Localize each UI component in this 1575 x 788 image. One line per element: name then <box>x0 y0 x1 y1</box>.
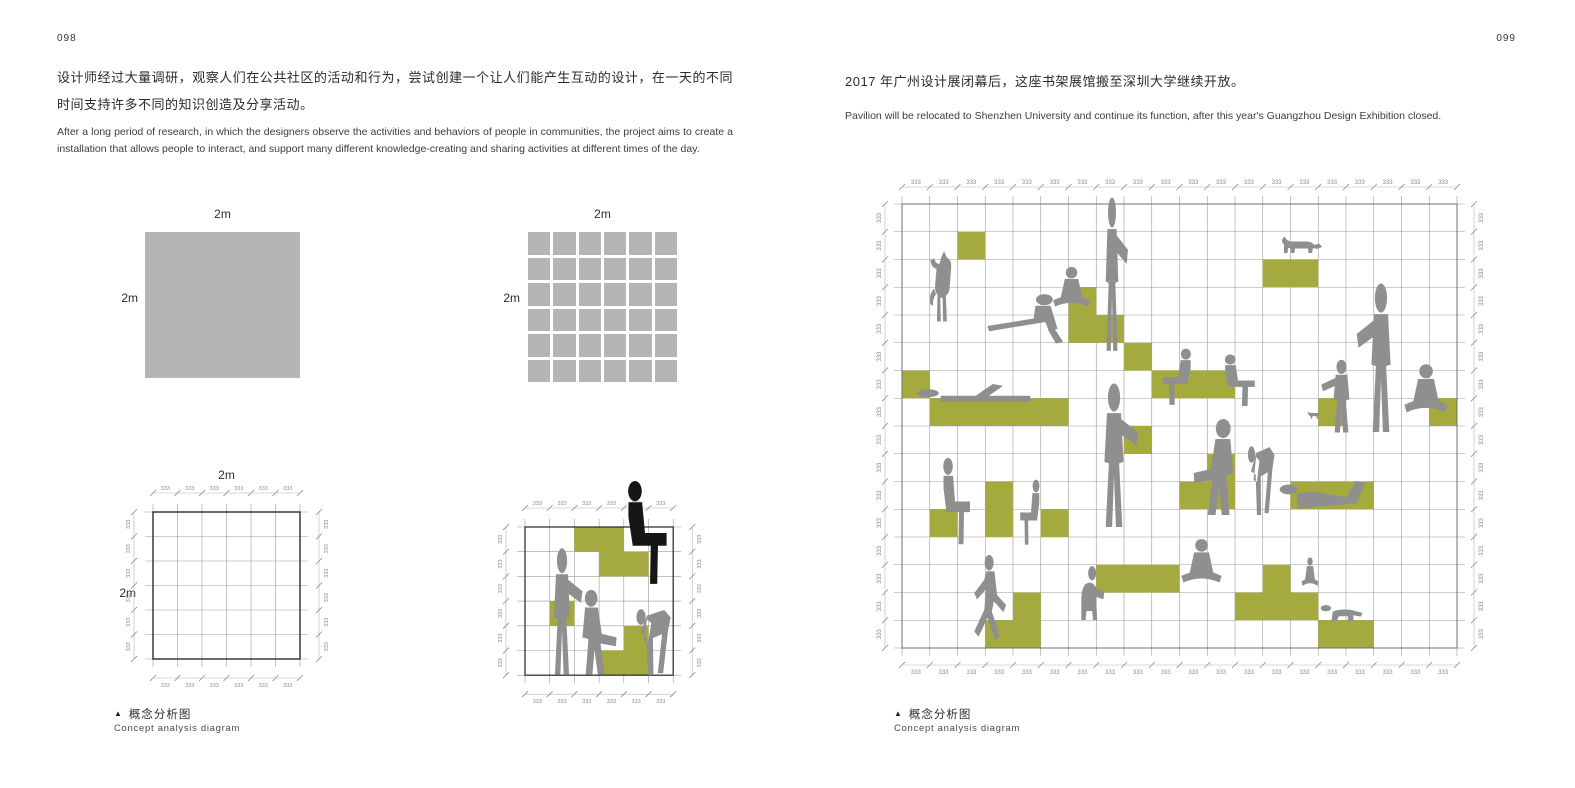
tick-label: 333 <box>1050 670 1061 676</box>
tick-label: 333 <box>1105 670 1116 676</box>
tick-label: 333 <box>1479 490 1485 501</box>
tick-label: 333 <box>324 618 330 627</box>
tick-label: 333 <box>697 634 703 643</box>
concept-diagram-large: 3333333333333333333333333333333333333333… <box>845 160 1510 695</box>
gray-module-cell <box>655 232 677 255</box>
tick-label: 333 <box>498 559 504 568</box>
gray-module-cell <box>629 232 651 255</box>
caption-triangle-icon: ▲ <box>894 710 903 718</box>
caption-zh-right: 概念分析图 <box>909 706 972 722</box>
green-module-cell <box>1069 315 1097 343</box>
tick-label: 333 <box>939 180 950 186</box>
tick-label: 333 <box>126 544 132 553</box>
tick-label: 333 <box>324 593 330 602</box>
figure-person-cross-legged <box>1404 364 1447 412</box>
tick-label: 333 <box>939 670 950 676</box>
paragraph-en-right: Pavilion will be relocated to Shenzhen U… <box>845 108 1505 125</box>
tick-label: 333 <box>1479 379 1485 390</box>
gray-module-cell <box>655 309 677 332</box>
tick-label: 333 <box>582 501 591 507</box>
tick-label: 333 <box>877 462 883 473</box>
solid-square <box>145 232 300 378</box>
figure-person-cross-legged <box>1302 557 1319 586</box>
tick-label: 333 <box>324 544 330 553</box>
green-module-cell <box>1013 593 1041 621</box>
figure-person-cross-legged <box>1053 267 1090 307</box>
tick-label: 333 <box>1216 670 1227 676</box>
tick-label: 333 <box>1022 180 1033 186</box>
figure-person-bend <box>1248 446 1275 515</box>
tick-label: 333 <box>1077 670 1088 676</box>
tick-label: 333 <box>161 683 170 689</box>
paragraph-zh-right: 2017 年广州设计展闭幕后，这座书架展馆搬至深圳大学继续开放。 <box>845 68 1495 95</box>
tick-label: 333 <box>498 535 504 544</box>
tick-label: 333 <box>1479 212 1485 223</box>
green-module-cell <box>985 482 1013 510</box>
green-module-cell <box>1124 565 1152 593</box>
green-module-cell <box>1013 620 1041 648</box>
figure-person-standing-arm <box>1104 383 1138 527</box>
figure-person-standing-arm <box>554 548 583 674</box>
figure-dog-small <box>1308 412 1320 418</box>
green-module-cell <box>1291 260 1319 288</box>
tick-label: 333 <box>1479 517 1485 528</box>
tick-label: 333 <box>1438 670 1449 676</box>
tick-label: 333 <box>1272 670 1283 676</box>
tick-label: 333 <box>911 180 922 186</box>
tick-label: 333 <box>911 670 922 676</box>
gray-module-cell <box>528 309 550 332</box>
solid-square-label-top: 2m <box>145 207 300 221</box>
outline-square-diagram: 3333333333333333333333333333333333333333… <box>105 455 350 705</box>
tick-label: 333 <box>126 642 132 651</box>
tick-label: 333 <box>1479 323 1485 334</box>
gray-module-cell <box>604 283 626 306</box>
paragraph-zh-left: 设计师经过大量调研，观察人们在公共社区的活动和行为，尝试创建一个让人们能产生互动… <box>57 64 733 118</box>
green-module-cell <box>1235 593 1263 621</box>
page-number-right: 099 <box>1470 33 1516 44</box>
tick-label: 333 <box>1216 180 1227 186</box>
gray-module-cell <box>629 309 651 332</box>
green-module-cell <box>1041 509 1069 537</box>
tick-label: 333 <box>697 535 703 544</box>
concept-diagram-small: 3333333333333333333333333333333333333333… <box>478 455 713 710</box>
green-module-cell <box>1263 593 1291 621</box>
tick-label: 333 <box>697 559 703 568</box>
tick-label: 333 <box>210 486 219 492</box>
green-module-cell <box>624 552 649 577</box>
tick-label: 333 <box>283 486 292 492</box>
gray-module-cell <box>604 258 626 281</box>
tick-label: 333 <box>161 486 170 492</box>
tick-label: 333 <box>1479 545 1485 556</box>
gray-module-cell <box>528 283 550 306</box>
figure-person-sit-block <box>1020 480 1039 545</box>
gray-module-cell <box>655 258 677 281</box>
book-spread: 098 设计师经过大量调研，观察人们在公共社区的活动和行为，尝试创建一个让人们能… <box>0 0 1575 788</box>
green-module-cell <box>1263 260 1291 288</box>
green-module-cell <box>1291 593 1319 621</box>
tick-label: 333 <box>1355 670 1366 676</box>
tick-label: 333 <box>557 699 566 705</box>
green-module-cell <box>1152 565 1180 593</box>
grid-square-label-left: 2m <box>480 291 520 305</box>
caption-left: ▲ 概念分析图 <box>114 706 191 722</box>
gray-module-cell <box>553 258 575 281</box>
tick-label: 333 <box>1479 240 1485 251</box>
tick-label: 333 <box>877 628 883 639</box>
green-module-cell <box>1263 565 1291 593</box>
tick-label: 333 <box>656 501 665 507</box>
green-module-cell <box>1152 371 1180 399</box>
tick-label: 333 <box>259 683 268 689</box>
tick-label: 333 <box>533 501 542 507</box>
caption-en-right: Concept analysis diagram <box>894 723 1020 734</box>
tick-label: 333 <box>877 351 883 362</box>
tick-label: 333 <box>1383 180 1394 186</box>
tick-label: 333 <box>1133 670 1144 676</box>
green-module-cell <box>958 398 986 426</box>
tick-label: 333 <box>877 295 883 306</box>
green-module-cell <box>1346 620 1374 648</box>
tick-label: 333 <box>1022 670 1033 676</box>
gray-module-cell <box>579 283 601 306</box>
tick-label: 333 <box>877 490 883 501</box>
caption-zh-left: 概念分析图 <box>129 706 192 722</box>
figure-baby-crawl <box>1321 605 1363 621</box>
tick-label: 333 <box>1383 670 1394 676</box>
page-number-left: 098 <box>57 33 77 44</box>
grid-square <box>528 232 677 382</box>
gray-module-cell <box>655 334 677 357</box>
gray-module-cell <box>528 258 550 281</box>
gray-module-cell <box>528 232 550 255</box>
green-module-cell <box>599 527 624 552</box>
green-module-cell <box>574 527 599 552</box>
tick-label: 333 <box>1410 180 1421 186</box>
gray-module-cell <box>629 360 651 383</box>
green-module-cell <box>599 552 624 577</box>
tick-label: 333 <box>126 618 132 627</box>
tick-label: 333 <box>877 434 883 445</box>
paragraph-en-left: After a long period of research, in whic… <box>57 124 733 157</box>
tick-label: 333 <box>877 573 883 584</box>
tick-label: 333 <box>1479 628 1485 639</box>
gray-module-cell <box>579 232 601 255</box>
tick-label: 333 <box>498 584 504 593</box>
tick-label: 333 <box>1188 180 1199 186</box>
tick-label: 333 <box>1050 180 1061 186</box>
figure-cat-walk <box>1282 237 1322 253</box>
gray-module-cell <box>655 360 677 383</box>
solid-square-label-left: 2m <box>98 291 138 305</box>
caption-en-left: Concept analysis diagram <box>114 723 240 734</box>
gray-module-cell <box>579 309 601 332</box>
gray-module-cell <box>655 283 677 306</box>
tick-label: 333 <box>607 699 616 705</box>
gray-module-cell <box>604 232 626 255</box>
gray-module-cell <box>604 309 626 332</box>
tick-label: 333 <box>1479 406 1485 417</box>
tick-label: 333 <box>877 601 883 612</box>
tick-label: 333 <box>877 323 883 334</box>
gray-module-cell <box>629 258 651 281</box>
tick-label: 333 <box>1327 180 1338 186</box>
figure-cat-climb <box>930 251 951 322</box>
grid-square-label-top: 2m <box>528 207 677 221</box>
tick-label: 333 <box>877 268 883 279</box>
tick-label: 333 <box>697 584 703 593</box>
green-module-cell <box>985 398 1013 426</box>
green-module-cell <box>624 651 649 676</box>
green-module-cell <box>1124 343 1152 371</box>
tick-label: 333 <box>126 569 132 578</box>
tick-label: 333 <box>1479 434 1485 445</box>
tick-label: 333 <box>582 699 591 705</box>
tick-label: 333 <box>877 406 883 417</box>
tick-label: 333 <box>1105 180 1116 186</box>
tick-label: 333 <box>697 609 703 618</box>
tick-label: 333 <box>259 486 268 492</box>
tick-label: 333 <box>1479 573 1485 584</box>
green-module-cell <box>1318 620 1346 648</box>
tick-label: 333 <box>1133 180 1144 186</box>
gray-module-cell <box>579 334 601 357</box>
gray-module-cell <box>579 258 601 281</box>
tick-label: 333 <box>632 699 641 705</box>
tick-label: 333 <box>994 180 1005 186</box>
tick-label: 333 <box>607 501 616 507</box>
tick-label: 333 <box>1479 295 1485 306</box>
tick-label: 333 <box>126 593 132 602</box>
gray-module-cell <box>629 283 651 306</box>
tick-label: 333 <box>498 609 504 618</box>
green-module-cell <box>930 509 958 537</box>
tick-label: 333 <box>1299 670 1310 676</box>
figure-person-cross-legged <box>1181 539 1221 583</box>
gray-module-cell <box>553 309 575 332</box>
gray-module-cell <box>604 334 626 357</box>
gray-module-cell <box>604 360 626 383</box>
tick-label: 333 <box>656 699 665 705</box>
gray-module-cell <box>528 360 550 383</box>
green-module-cell <box>1096 565 1124 593</box>
tick-label: 333 <box>1299 180 1310 186</box>
tick-label: 333 <box>877 379 883 390</box>
tick-label: 333 <box>324 642 330 651</box>
tick-label: 333 <box>1161 180 1172 186</box>
tick-label: 333 <box>994 670 1005 676</box>
tick-label: 333 <box>185 683 194 689</box>
green-module-cell <box>1013 398 1041 426</box>
green-module-cell <box>985 509 1013 537</box>
tick-label: 333 <box>234 486 243 492</box>
tick-label: 333 <box>1077 180 1088 186</box>
tick-label: 333 <box>697 658 703 667</box>
green-module-cell <box>958 232 986 260</box>
tick-label: 333 <box>966 670 977 676</box>
figure-person-reclined <box>987 294 1063 343</box>
tick-label: 333 <box>533 699 542 705</box>
tick-label: 333 <box>1410 670 1421 676</box>
tick-label: 333 <box>1438 180 1449 186</box>
tick-label: 333 <box>126 520 132 529</box>
gray-module-cell <box>528 334 550 357</box>
tick-label: 333 <box>1327 670 1338 676</box>
tick-label: 333 <box>877 240 883 251</box>
tick-label: 333 <box>1272 180 1283 186</box>
caption-triangle-icon: ▲ <box>114 710 123 718</box>
tick-label: 333 <box>185 486 194 492</box>
tick-label: 333 <box>1479 268 1485 279</box>
tick-label: 333 <box>1355 180 1366 186</box>
tick-label: 333 <box>324 569 330 578</box>
caption-right: ▲ 概念分析图 <box>894 706 971 722</box>
tick-label: 333 <box>1479 601 1485 612</box>
green-module-cell <box>1041 398 1069 426</box>
tick-label: 333 <box>498 658 504 667</box>
green-module-cell <box>930 398 958 426</box>
tick-label: 333 <box>234 683 243 689</box>
tick-label: 333 <box>1244 670 1255 676</box>
gray-module-cell <box>553 360 575 383</box>
green-module-cell <box>1180 482 1208 510</box>
tick-label: 333 <box>966 180 977 186</box>
gray-module-cell <box>553 232 575 255</box>
tick-label: 333 <box>283 683 292 689</box>
gray-module-cell <box>553 334 575 357</box>
tick-label: 333 <box>1188 670 1199 676</box>
tick-label: 333 <box>557 501 566 507</box>
tick-label: 333 <box>324 520 330 529</box>
tick-label: 333 <box>1161 670 1172 676</box>
tick-label: 333 <box>1479 462 1485 473</box>
tick-label: 333 <box>210 683 219 689</box>
tick-label: 333 <box>1244 180 1255 186</box>
tick-label: 333 <box>877 212 883 223</box>
gray-module-cell <box>553 283 575 306</box>
tick-label: 333 <box>877 517 883 528</box>
gray-module-cell <box>629 334 651 357</box>
tick-label: 333 <box>1479 351 1485 362</box>
tick-label: 333 <box>498 634 504 643</box>
tick-label: 333 <box>877 545 883 556</box>
gray-module-cell <box>579 360 601 383</box>
